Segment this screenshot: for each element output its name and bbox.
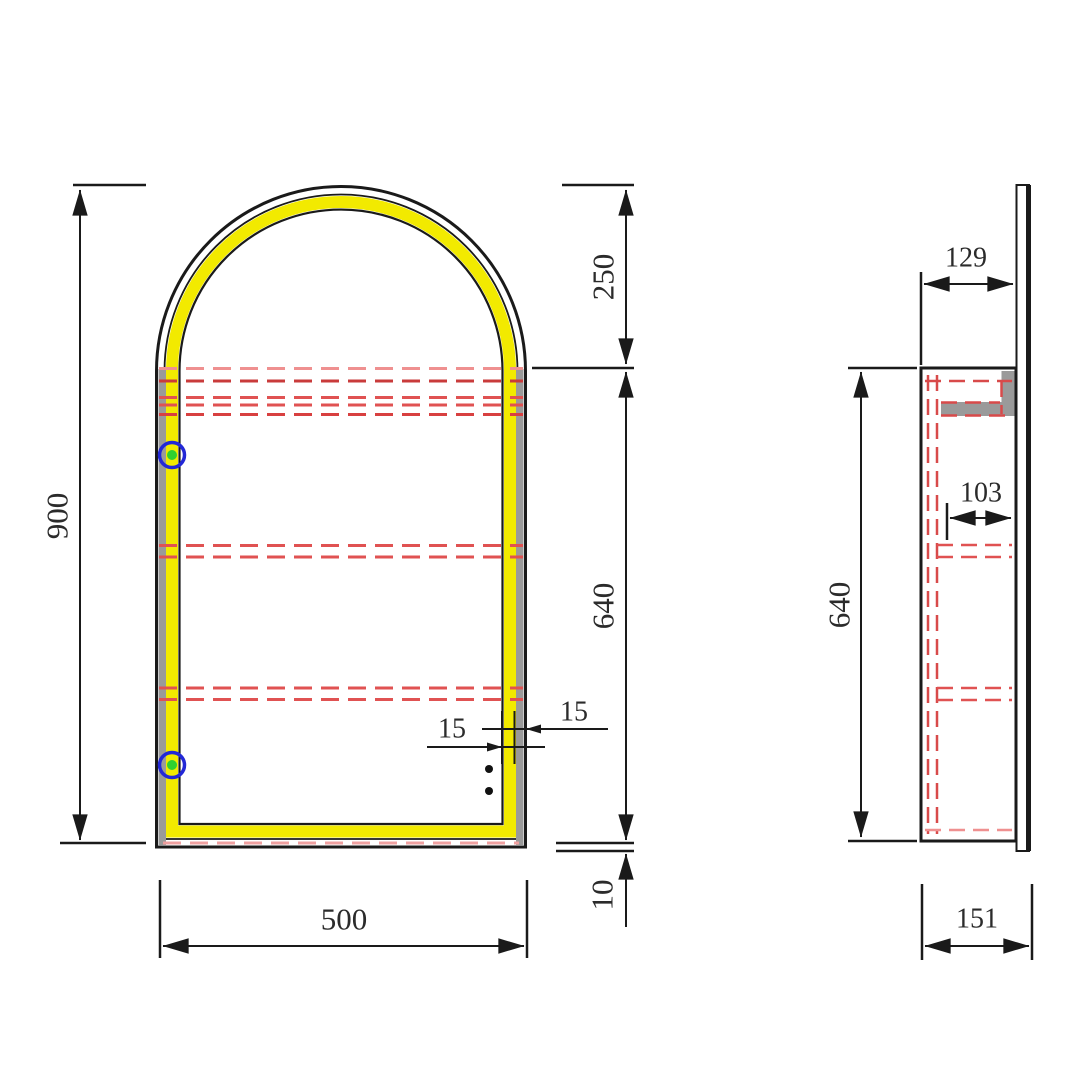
side-top-frame-shade-horizontal: [941, 402, 1015, 416]
dim-label-900: 900: [40, 493, 75, 540]
dim-overall-depth: 151: [922, 884, 1032, 960]
hinge-dot-icon: [167, 760, 177, 770]
mount-hole-dot: [485, 787, 493, 795]
dim-label-129: 129: [945, 243, 987, 274]
dim-label-250: 250: [586, 254, 621, 301]
hinge-dot-icon: [167, 450, 177, 460]
dim-label-15-led: 15: [438, 714, 466, 745]
dim-bottom-offset: 10: [556, 843, 634, 927]
arched-led-mirror-cabinet-drawing: 900 250 640 10 15: [0, 0, 1080, 1080]
mount-hole-dot: [485, 765, 493, 773]
dim-carcass-height-front: 640: [586, 372, 627, 840]
technical-drawing-canvas: 900 250 640 10 15: [0, 0, 1080, 1080]
dim-label-640-front: 640: [586, 583, 621, 630]
side-carcass-outline: [921, 368, 1016, 841]
arrowhead-left-icon: [526, 725, 541, 734]
dim-label-103: 103: [960, 478, 1002, 509]
dim-label-500: 500: [321, 902, 368, 937]
dim-label-151: 151: [956, 904, 998, 935]
dim-arch-height: 250: [532, 185, 634, 368]
dim-overall-height: 900: [40, 185, 147, 843]
dim-label-640-side: 640: [822, 582, 857, 629]
dim-inner-depth: 129: [921, 243, 1013, 366]
dim-overall-width: 500: [160, 880, 527, 958]
dim-label-15-frame: 15: [560, 697, 588, 728]
dim-label-10: 10: [585, 880, 620, 911]
front-right-carcass-shade: [516, 369, 524, 845]
dim-carcass-height-side: 640: [822, 368, 918, 841]
